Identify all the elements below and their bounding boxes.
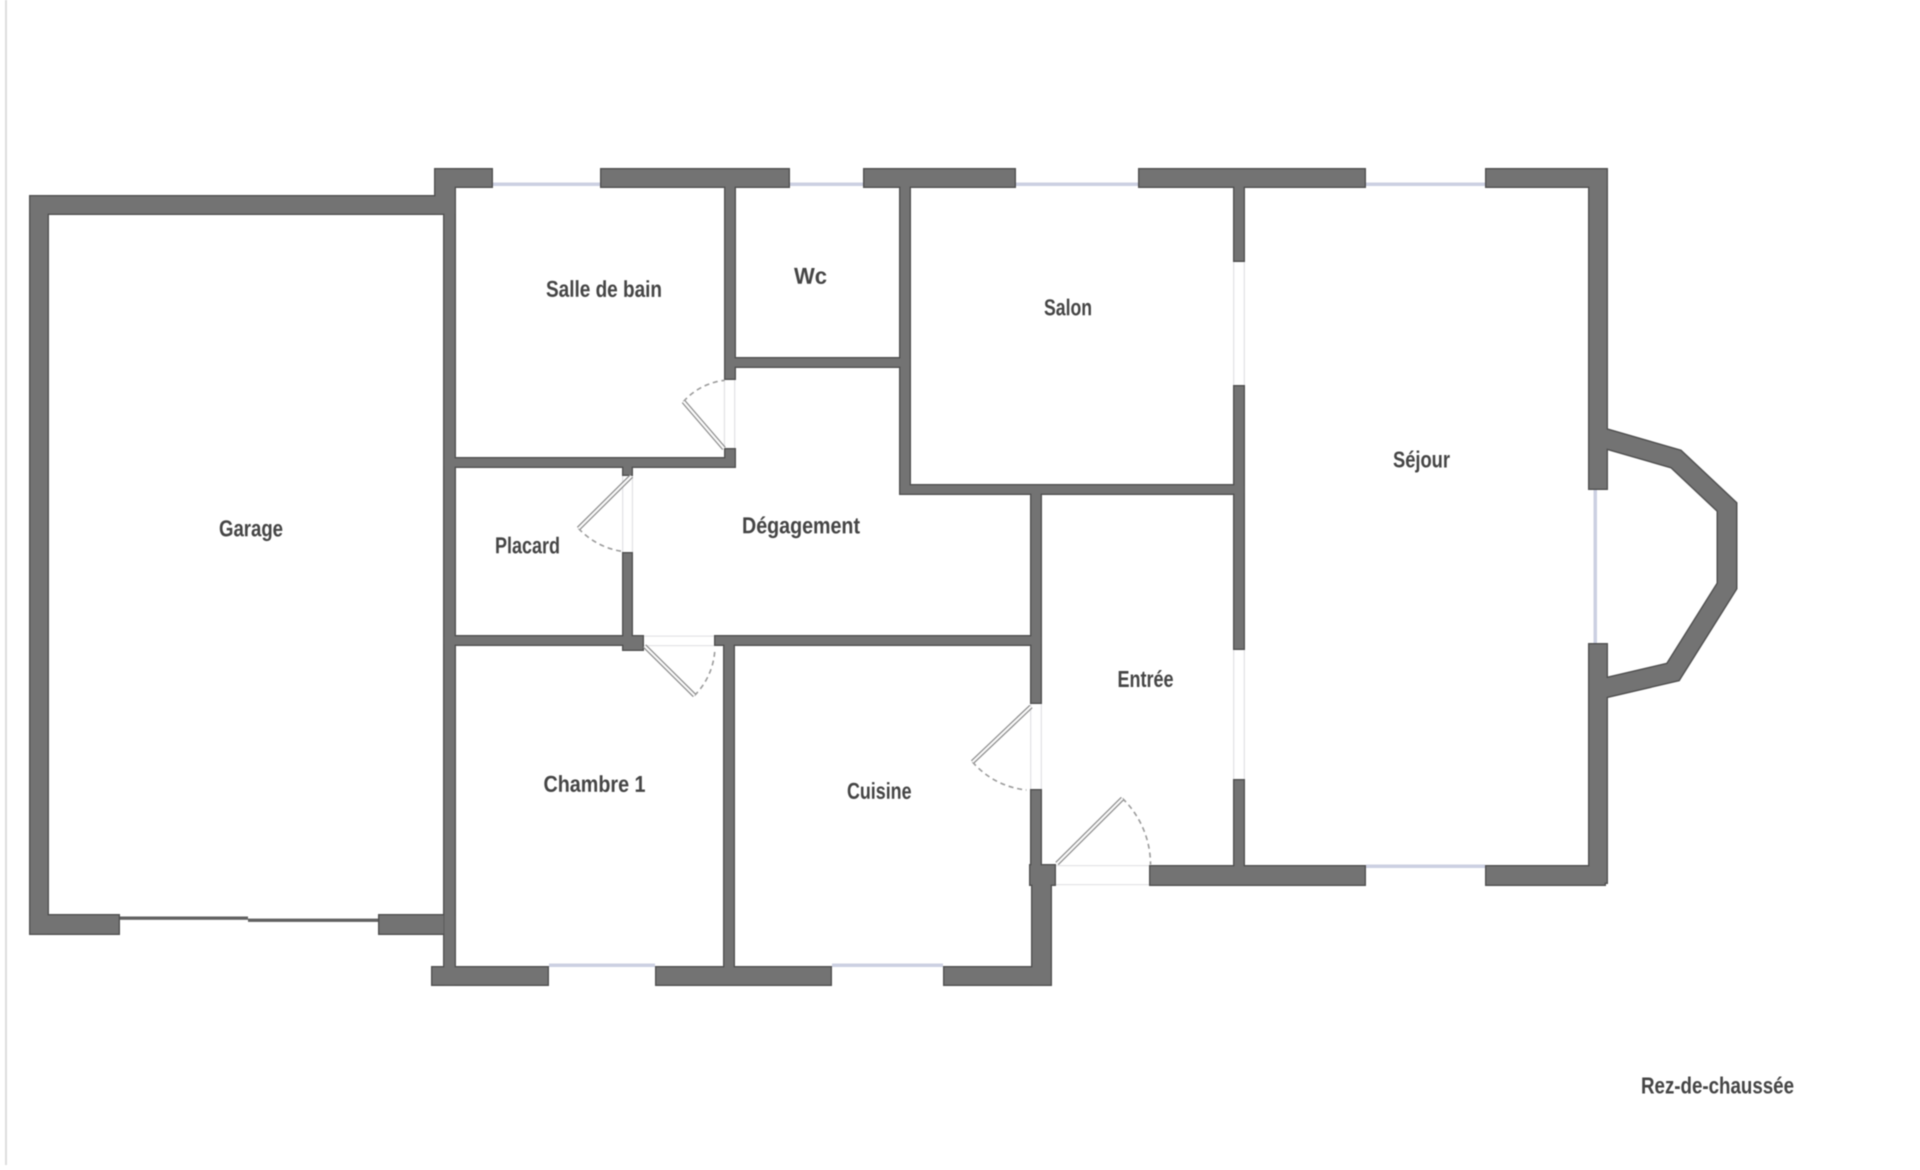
svg-text:Placard: Placard: [495, 532, 560, 558]
svg-text:Cuisine: Cuisine: [847, 778, 912, 804]
svg-text:Entrée: Entrée: [1117, 666, 1173, 692]
svg-text:Dégagement: Dégagement: [742, 512, 860, 538]
svg-text:Chambre 1: Chambre 1: [543, 771, 645, 797]
svg-text:Séjour: Séjour: [1393, 446, 1450, 472]
svg-text:Garage: Garage: [219, 515, 283, 541]
svg-text:Salon: Salon: [1044, 294, 1092, 320]
svg-text:Salle de bain: Salle de bain: [546, 276, 662, 302]
svg-text:Rez-de-chaussée: Rez-de-chaussée: [1641, 1072, 1794, 1098]
svg-text:Wc: Wc: [794, 263, 827, 289]
